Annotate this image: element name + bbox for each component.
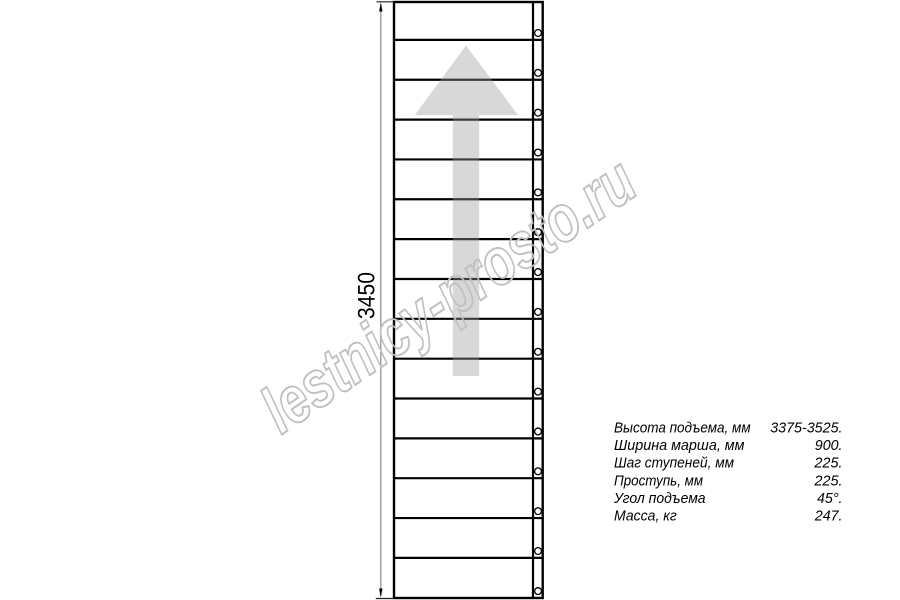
- svg-text:225.: 225.: [813, 472, 842, 489]
- svg-text:Шаг ступеней, мм: Шаг ступеней, мм: [614, 455, 734, 472]
- svg-text:900.: 900.: [815, 437, 843, 454]
- svg-text:lestnicy-prosto.ru: lestnicy-prosto.ru: [247, 143, 648, 447]
- svg-text:Ширина марша, мм: Ширина марша, мм: [614, 437, 745, 454]
- svg-text:Высота подъема, мм: Высота подъема, мм: [614, 420, 751, 437]
- svg-text:3375-3525.: 3375-3525.: [770, 420, 842, 437]
- svg-text:Проступь, мм: Проступь, мм: [614, 472, 703, 489]
- svg-text:Угол подъема: Угол подъема: [613, 490, 706, 507]
- svg-text:Масса, кг: Масса, кг: [614, 508, 677, 525]
- svg-text:247.: 247.: [814, 508, 843, 525]
- svg-text:225.: 225.: [813, 455, 842, 472]
- svg-text:45°.: 45°.: [817, 490, 843, 507]
